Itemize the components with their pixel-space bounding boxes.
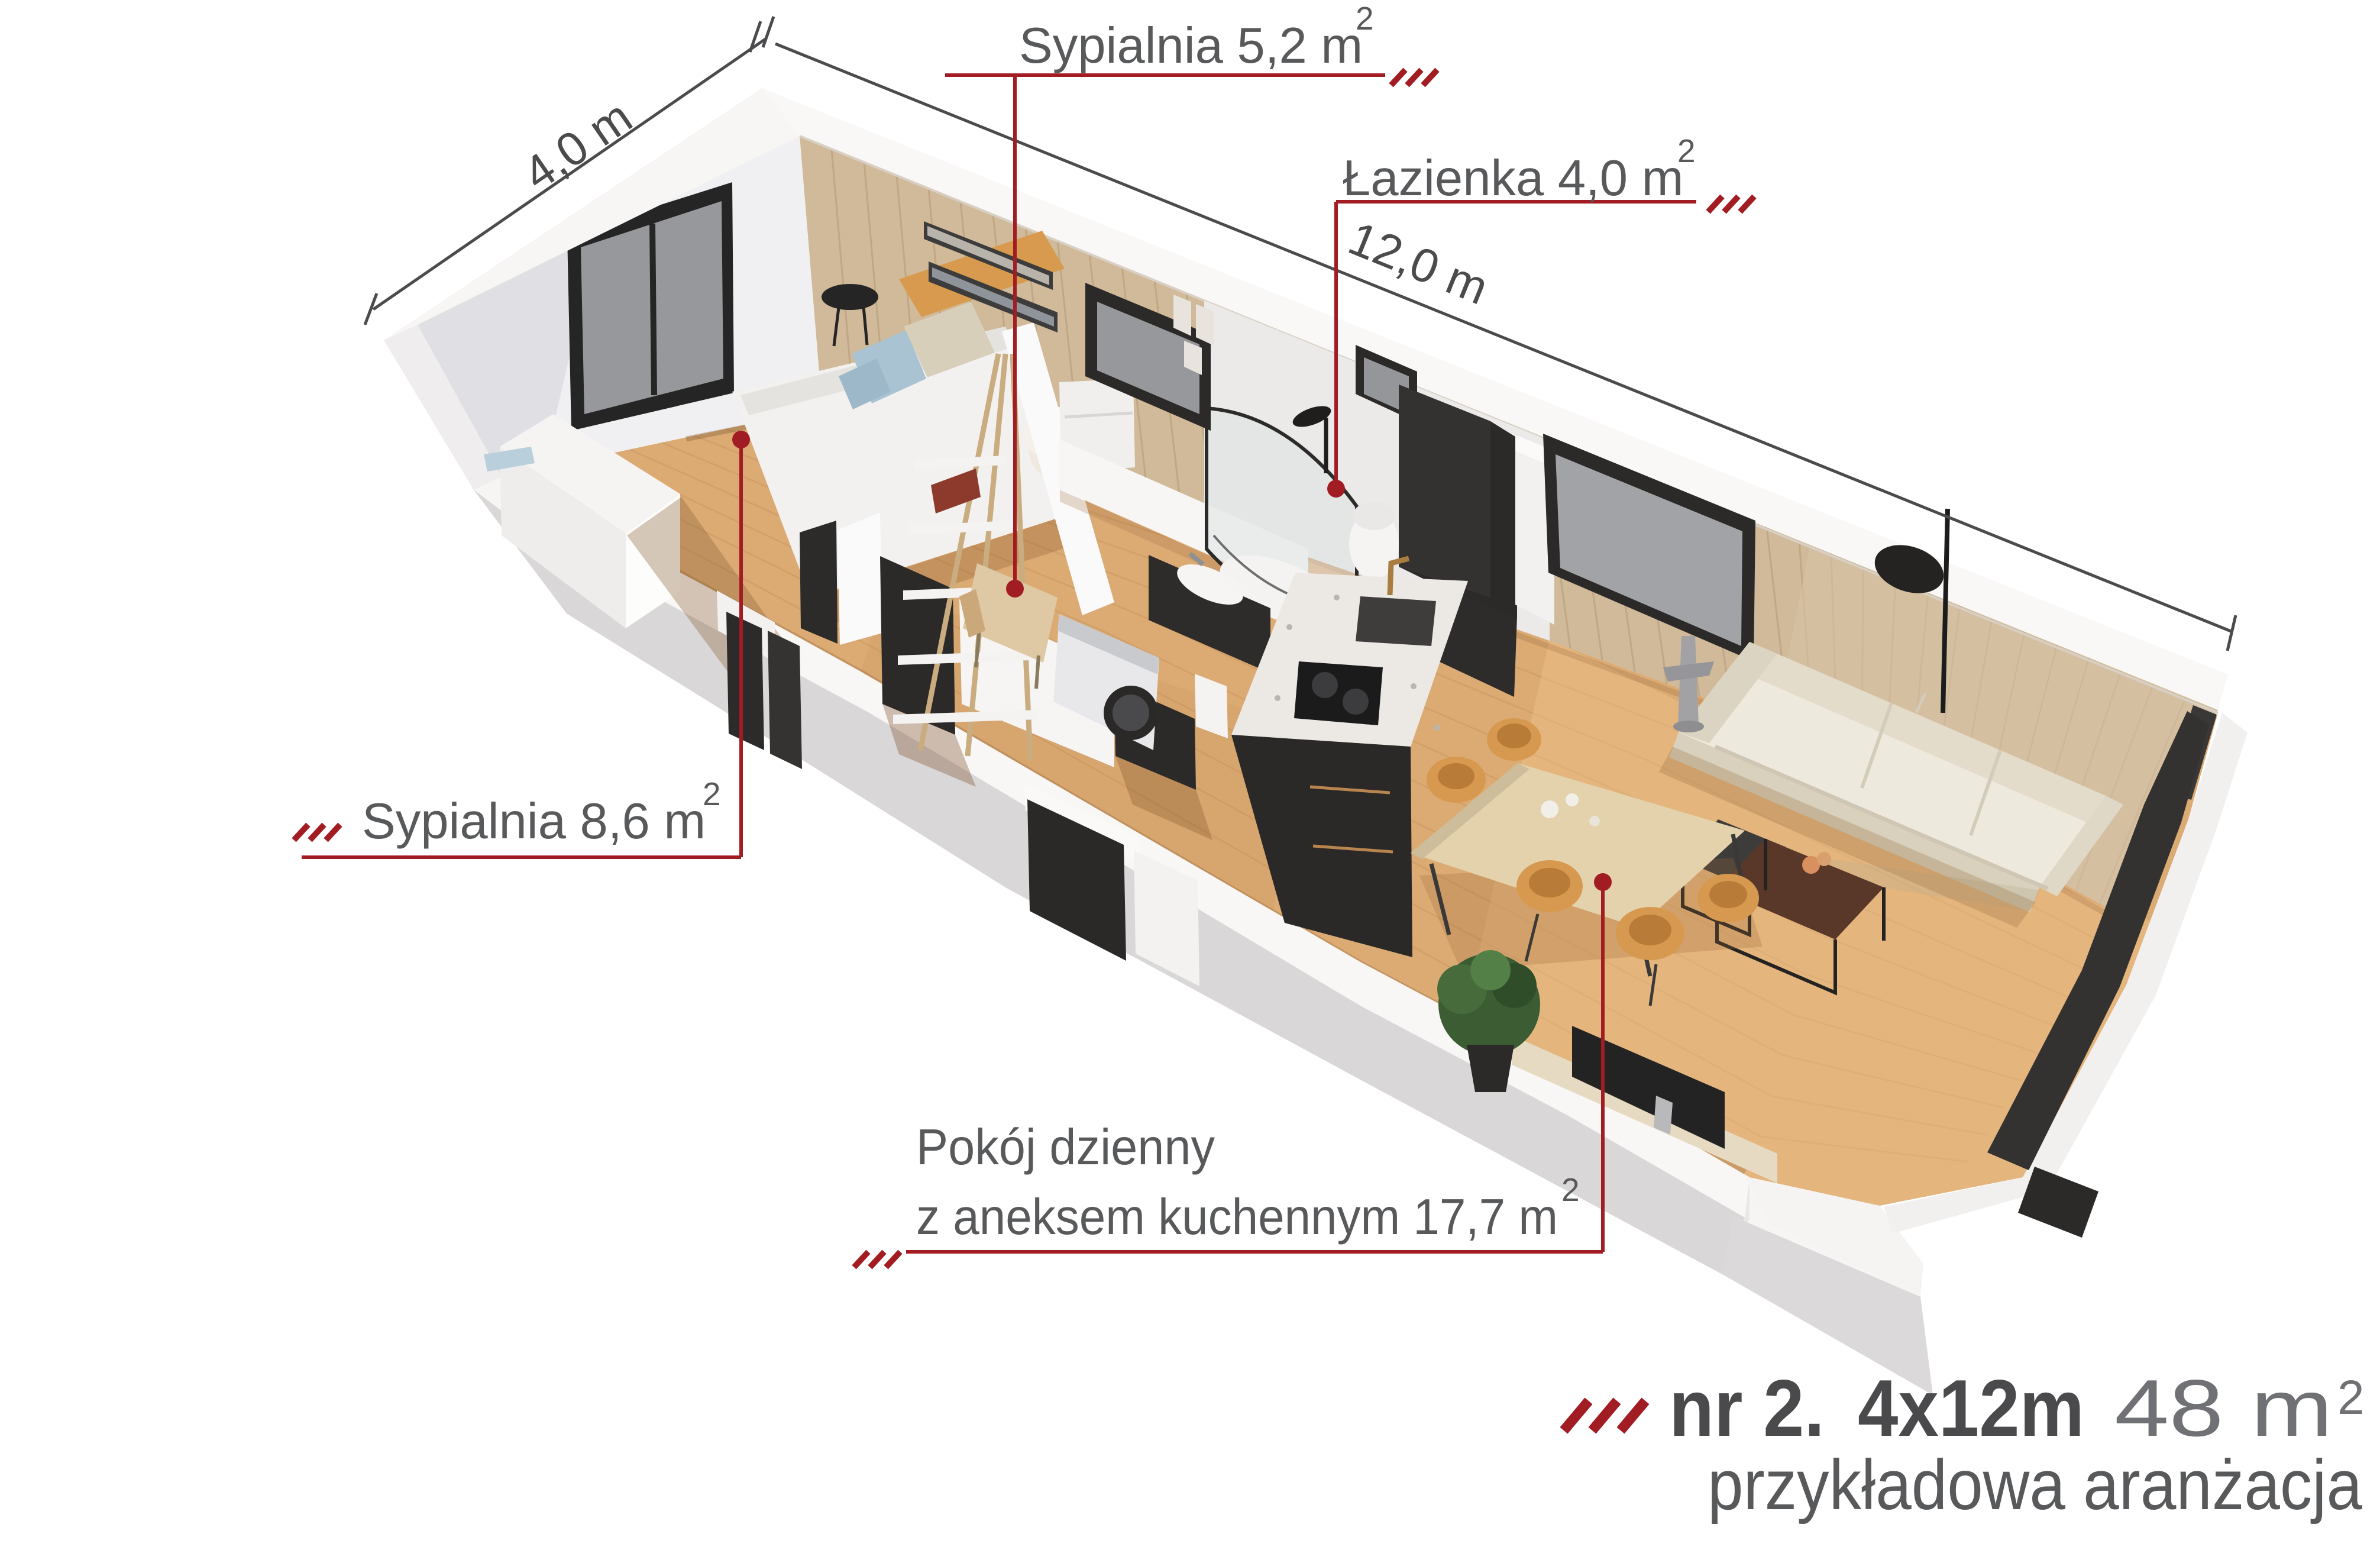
svg-text:Pokój dzienny: Pokój dzienny: [916, 1119, 1215, 1176]
svg-text:2: 2: [2337, 1371, 2365, 1425]
svg-text:nr 2.: nr 2.: [1669, 1363, 1825, 1453]
svg-text:2: 2: [1677, 133, 1696, 169]
svg-text:48 m: 48 m: [2114, 1363, 2333, 1453]
svg-text:Łazienka 4,0 m: Łazienka 4,0 m: [1343, 150, 1683, 206]
svg-text:4x12m: 4x12m: [1858, 1363, 2084, 1453]
svg-text:przykładowa aranżacja: przykładowa aranżacja: [1708, 1445, 2362, 1525]
svg-text:2: 2: [703, 776, 721, 812]
svg-text:12,0 m: 12,0 m: [1341, 211, 1495, 314]
svg-text:2: 2: [1561, 1171, 1580, 1208]
svg-text:2: 2: [1356, 0, 1374, 37]
svg-text:z aneksem kuchennym 17,7 m: z aneksem kuchennym 17,7 m: [916, 1189, 1558, 1245]
svg-text:Sypialnia 5,2 m: Sypialnia 5,2 m: [1019, 18, 1363, 74]
svg-text:Sypialnia 8,6 m: Sypialnia 8,6 m: [362, 793, 706, 850]
